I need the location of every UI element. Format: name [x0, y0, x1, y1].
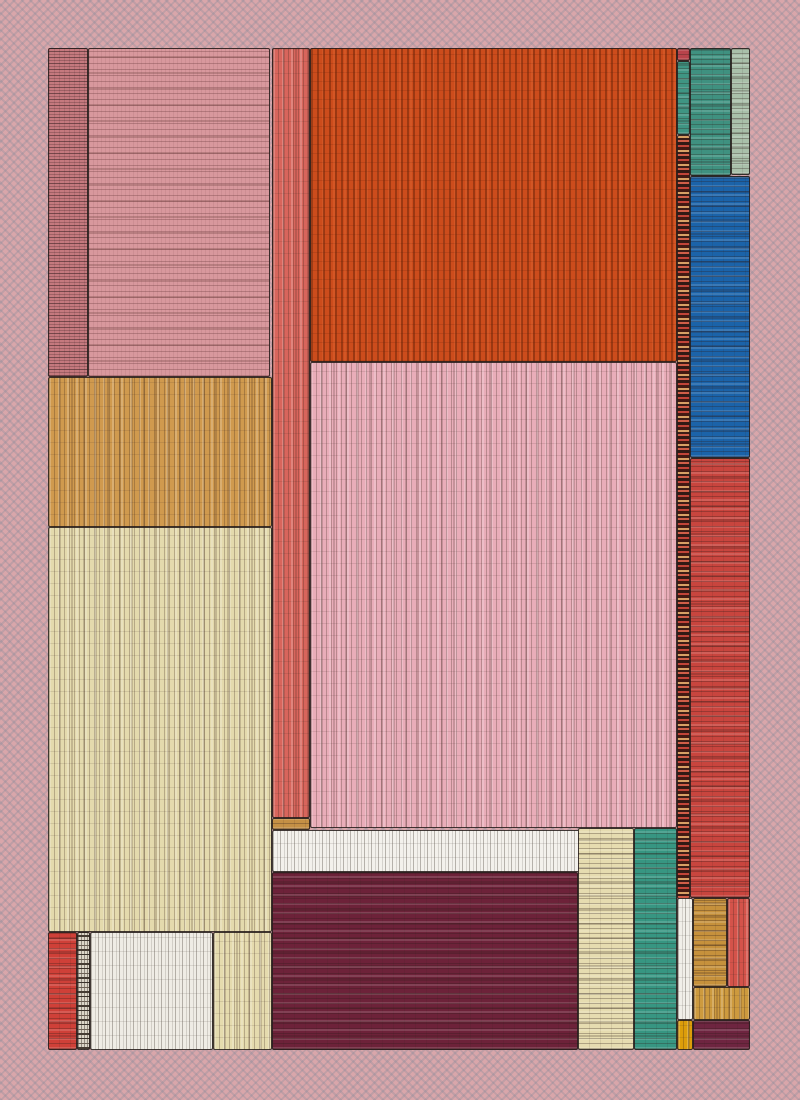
patterned-background	[0, 0, 800, 1100]
speckle-gray-strip	[77, 932, 90, 1050]
red-right-block	[690, 458, 750, 898]
pink-field	[310, 362, 677, 828]
cream-block	[48, 527, 272, 932]
tan-block	[48, 377, 272, 527]
teal-top-block	[690, 48, 731, 176]
ochre-wide-block	[693, 987, 750, 1020]
cream-bottom-left-block	[213, 932, 272, 1050]
speckle-warm-spine	[677, 135, 690, 899]
salmon-strip	[272, 48, 310, 818]
teal-narrow-strip	[677, 61, 690, 135]
ochre-mini-block	[272, 818, 310, 830]
artwork-composition	[48, 48, 750, 1050]
white-bottom-left-block	[90, 932, 213, 1050]
maroon-field	[272, 872, 578, 1050]
red-top-mini-block	[677, 48, 690, 61]
orange-field	[310, 48, 677, 362]
cream-column	[578, 828, 634, 1050]
white-middle-strip	[272, 830, 581, 872]
white-bottom-right-column	[677, 898, 693, 1020]
red-bottom-right-column	[727, 898, 750, 987]
rose-scribble-strip	[48, 48, 88, 377]
sage-top-strip	[731, 48, 750, 175]
red-bottom-left-block	[48, 932, 77, 1050]
dusty-pink-block	[88, 48, 270, 377]
maroon-bottom-right-block	[693, 1020, 750, 1050]
ochre-bottom-right-block	[693, 898, 727, 987]
teal-column	[634, 828, 677, 1050]
gold-mini-block	[677, 1020, 693, 1050]
blue-block	[690, 176, 750, 458]
